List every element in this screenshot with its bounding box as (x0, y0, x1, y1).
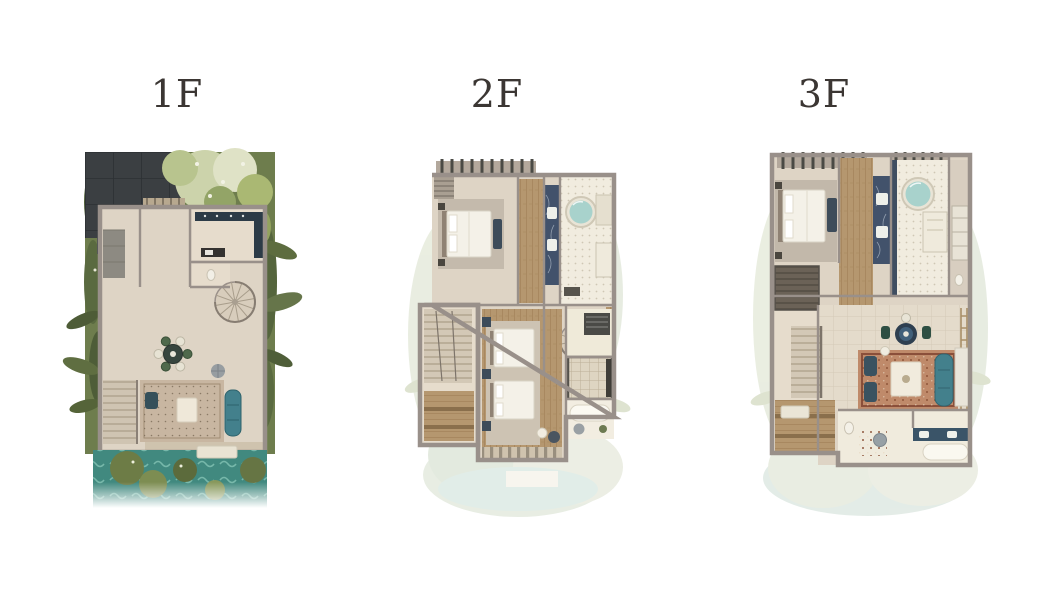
stair-void (775, 266, 819, 310)
wardrobe (952, 206, 968, 260)
floor-label-2f: 2F (442, 72, 552, 116)
toilet (845, 422, 854, 434)
headboard (442, 211, 447, 257)
bathroom (560, 177, 614, 305)
basin (547, 207, 557, 219)
twin-bedroom (482, 309, 562, 459)
armchair (864, 356, 877, 376)
round-chair (548, 431, 560, 443)
marble-counter (873, 176, 891, 264)
lower-bathroom (838, 410, 970, 463)
bathtub (923, 444, 968, 460)
floor-plan-1f (85, 152, 275, 508)
master-bedroom (438, 199, 504, 269)
pillow (785, 195, 793, 213)
pillow (449, 215, 457, 232)
basin (876, 193, 888, 205)
stair-to-pool (103, 380, 137, 444)
pillow (785, 220, 793, 238)
floor-plan-3f (763, 148, 978, 512)
faint-lounger (506, 471, 558, 487)
round-basin (874, 434, 887, 447)
armchair (864, 382, 877, 402)
stool (537, 428, 547, 438)
stool (574, 424, 585, 435)
house-1f (100, 198, 265, 453)
nightstand (482, 369, 491, 379)
wood-terrace (775, 400, 835, 453)
sofa (935, 354, 953, 406)
powder-room (192, 264, 230, 287)
side-table (881, 347, 890, 356)
toilet (207, 270, 215, 281)
nightstand (438, 259, 445, 266)
nightstand (482, 317, 491, 327)
terrace-lounger (781, 406, 809, 418)
floor-label-1f: 1F (122, 72, 232, 116)
floor-plan-2f (418, 155, 618, 510)
basin (547, 239, 557, 251)
floor-plan-3f-drawing (763, 148, 978, 512)
bath-bench (564, 287, 580, 296)
bed-bench (493, 219, 502, 249)
kitchen (192, 209, 263, 260)
house-3f (772, 152, 970, 465)
vanity (596, 243, 612, 277)
bed-bench (827, 198, 837, 232)
plant (599, 425, 607, 433)
nightstand (438, 203, 445, 210)
sofa (225, 390, 241, 436)
bedroom (775, 180, 837, 262)
side-patio (103, 230, 125, 278)
stair-hall (424, 309, 472, 383)
wood-corridor (518, 179, 544, 303)
storage (584, 313, 610, 335)
pillow (449, 235, 457, 252)
vanity (923, 212, 947, 252)
bathroom (891, 160, 949, 296)
basin (876, 226, 888, 238)
floorplan-sheet: 1F 2F 3F (0, 0, 1062, 598)
floor-label-3f: 3F (769, 72, 879, 116)
floor-plan-2f-drawing (418, 155, 618, 510)
dining-chair (881, 326, 890, 339)
dining-chair (922, 326, 931, 339)
shower-room (566, 309, 614, 439)
coffee-table (177, 398, 197, 422)
floor-plan-1f-drawing (85, 152, 275, 508)
marble-wardrobe (544, 185, 560, 285)
house-2f (420, 159, 614, 460)
image-fade (85, 482, 275, 508)
headboard (778, 190, 783, 242)
closet-wc (949, 160, 970, 296)
nightstand (482, 421, 491, 431)
nightstand (775, 182, 782, 189)
sink (205, 250, 213, 255)
shower (596, 195, 612, 225)
toilet (955, 275, 963, 286)
nightstand (775, 252, 782, 259)
wood-balcony (424, 391, 474, 441)
staircase (791, 326, 821, 398)
pool-lounger (197, 446, 237, 458)
lounge-chair (145, 392, 158, 409)
living-room (818, 305, 970, 410)
dining-chair (902, 314, 911, 323)
wall-jut (955, 348, 969, 406)
